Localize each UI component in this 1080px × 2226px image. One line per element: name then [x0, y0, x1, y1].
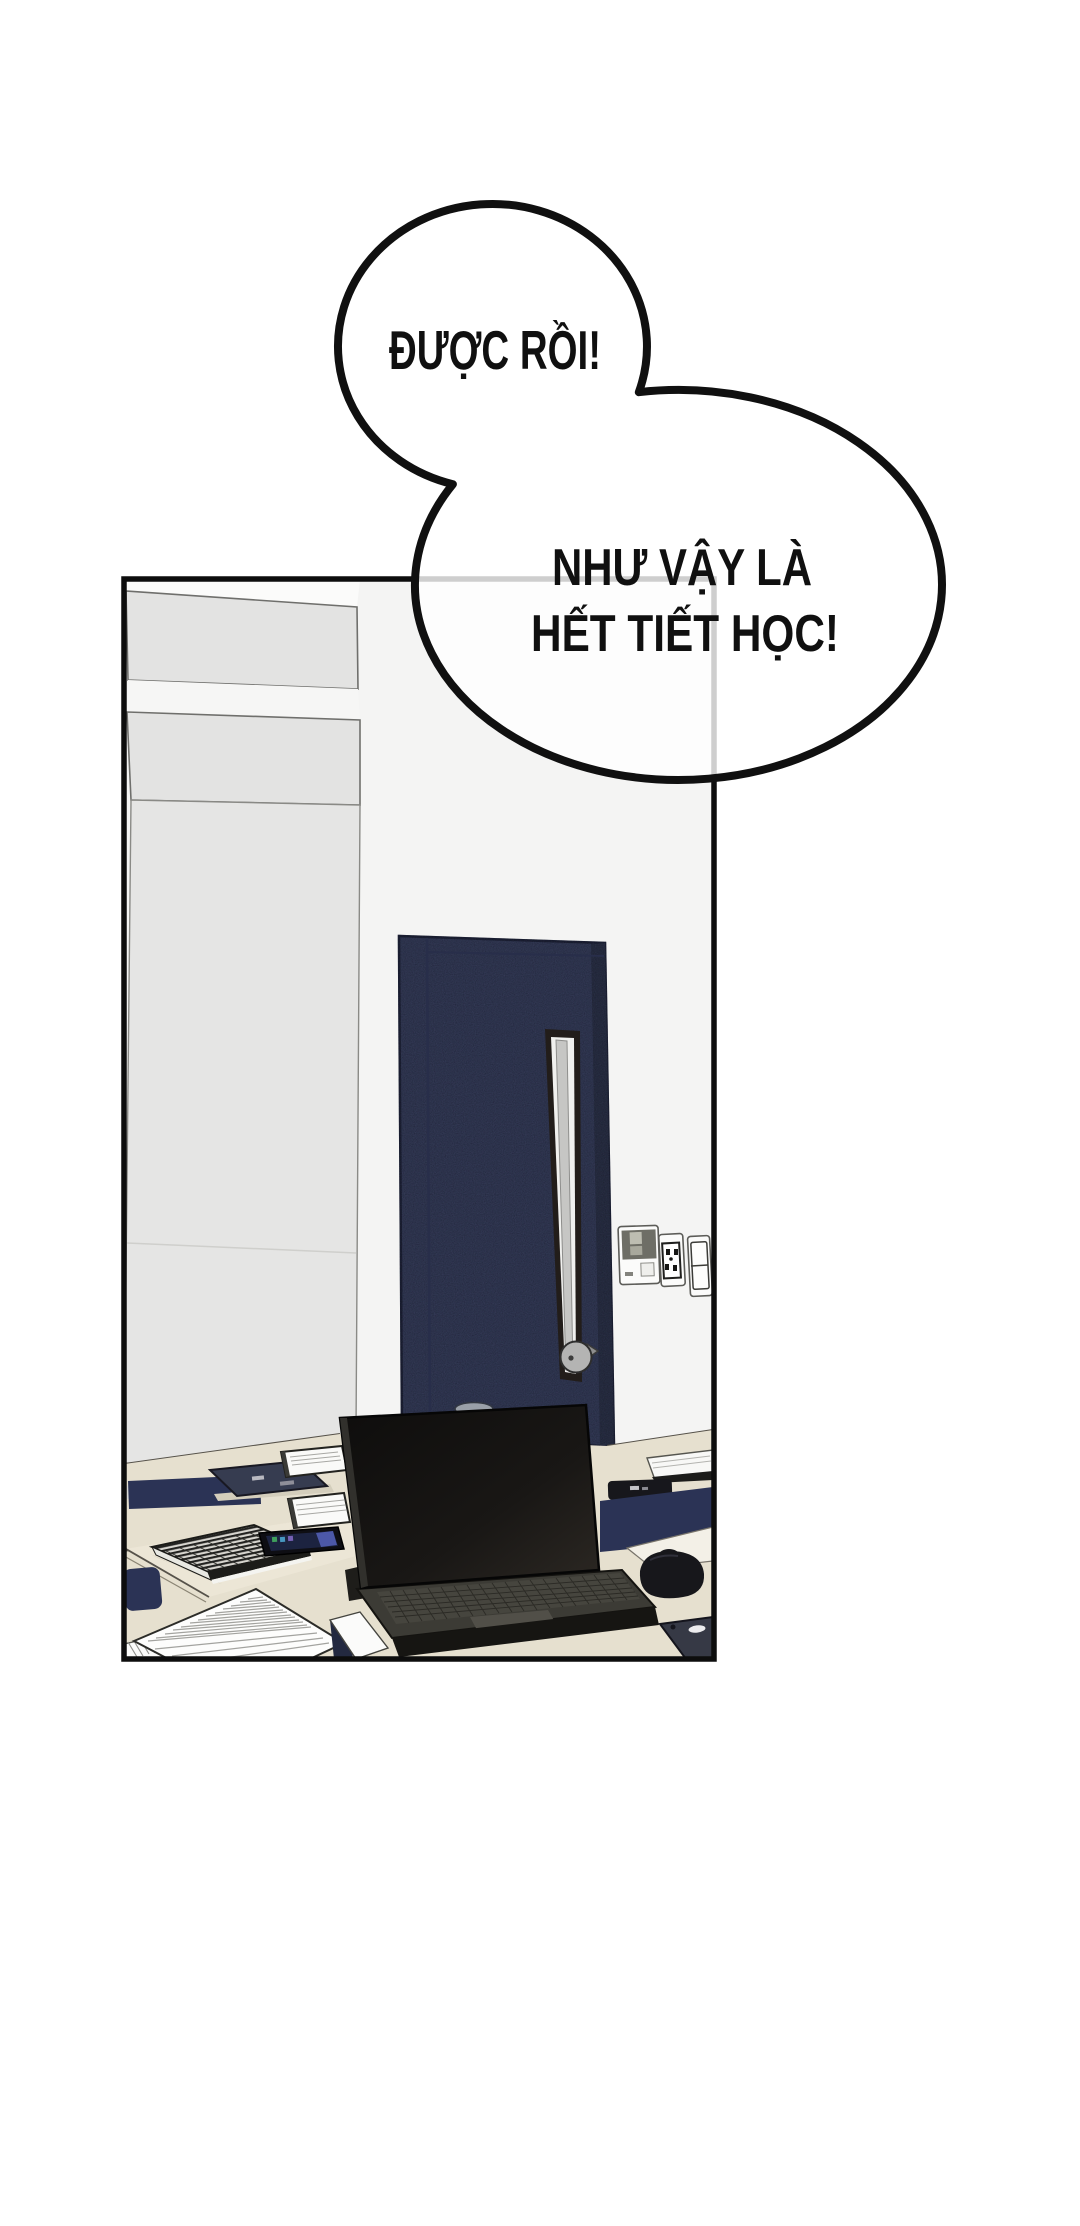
svg-text:HẾT TIẾT HỌC!: HẾT TIẾT HỌC! — [531, 604, 839, 663]
svg-text:NHƯ VẬY LÀ: NHƯ VẬY LÀ — [552, 538, 812, 597]
svg-text:ĐƯỢC RỒI!: ĐƯỢC RỒI! — [389, 319, 601, 381]
